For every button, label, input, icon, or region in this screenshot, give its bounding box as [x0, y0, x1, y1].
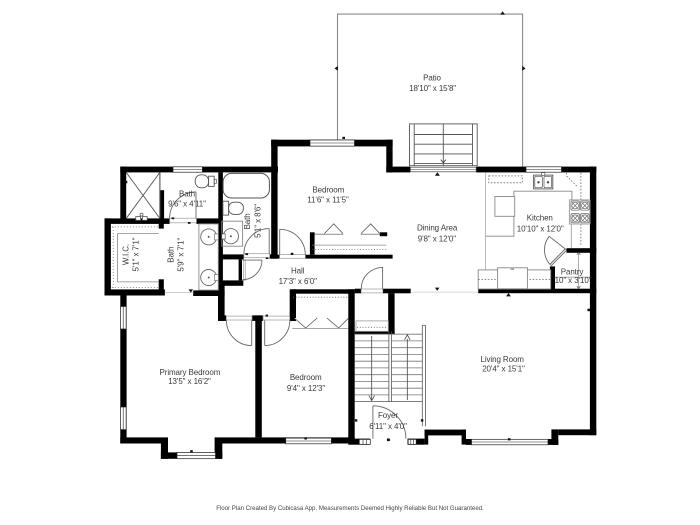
- svg-text:Foyer: Foyer: [378, 411, 398, 420]
- svg-text:9'8" x 12'0": 9'8" x 12'0": [418, 234, 456, 243]
- svg-text:13'5" x 16'2": 13'5" x 16'2": [168, 377, 211, 386]
- svg-text:20'4" x 15'1": 20'4" x 15'1": [482, 365, 525, 374]
- svg-text:Dining Area: Dining Area: [417, 223, 458, 232]
- svg-text:5'1" x 8'6": 5'1" x 8'6": [253, 204, 262, 238]
- svg-text:Bath: Bath: [179, 189, 195, 198]
- svg-text:Primary Bedroom: Primary Bedroom: [160, 368, 221, 377]
- svg-text:Living Room: Living Room: [481, 355, 525, 364]
- svg-text:Bedroom: Bedroom: [290, 373, 322, 382]
- svg-text:5'9" x 7'1": 5'9" x 7'1": [177, 238, 186, 272]
- svg-text:Bedroom: Bedroom: [312, 186, 344, 195]
- svg-text:6'11" x 4'0": 6'11" x 4'0": [369, 422, 407, 431]
- svg-text:11'6" x 11'5": 11'6" x 11'5": [307, 195, 349, 204]
- svg-text:W.I.C.: W.I.C.: [121, 244, 130, 265]
- svg-text:10'10" x 12'0": 10'10" x 12'0": [517, 225, 564, 234]
- svg-text:Bath: Bath: [167, 247, 176, 263]
- svg-text:Bath: Bath: [243, 213, 252, 229]
- svg-text:Hall: Hall: [291, 266, 305, 275]
- svg-text:9'4" x 12'3": 9'4" x 12'3": [287, 384, 325, 393]
- svg-text:18'10" x 15'8": 18'10" x 15'8": [409, 84, 456, 93]
- svg-text:'10" x 3'10": '10" x 3'10": [553, 276, 591, 285]
- svg-text:9'6" x 4'11": 9'6" x 4'11": [168, 200, 206, 209]
- svg-text:Floor Plan Created By Cubicasa: Floor Plan Created By Cubicasa App. Meas…: [216, 505, 484, 512]
- svg-text:Kitchen: Kitchen: [527, 214, 553, 223]
- svg-text:17'3" x 6'0": 17'3" x 6'0": [279, 277, 317, 286]
- svg-text:5'1" x 7'1": 5'1" x 7'1": [131, 237, 140, 271]
- svg-text:Patio: Patio: [423, 74, 441, 83]
